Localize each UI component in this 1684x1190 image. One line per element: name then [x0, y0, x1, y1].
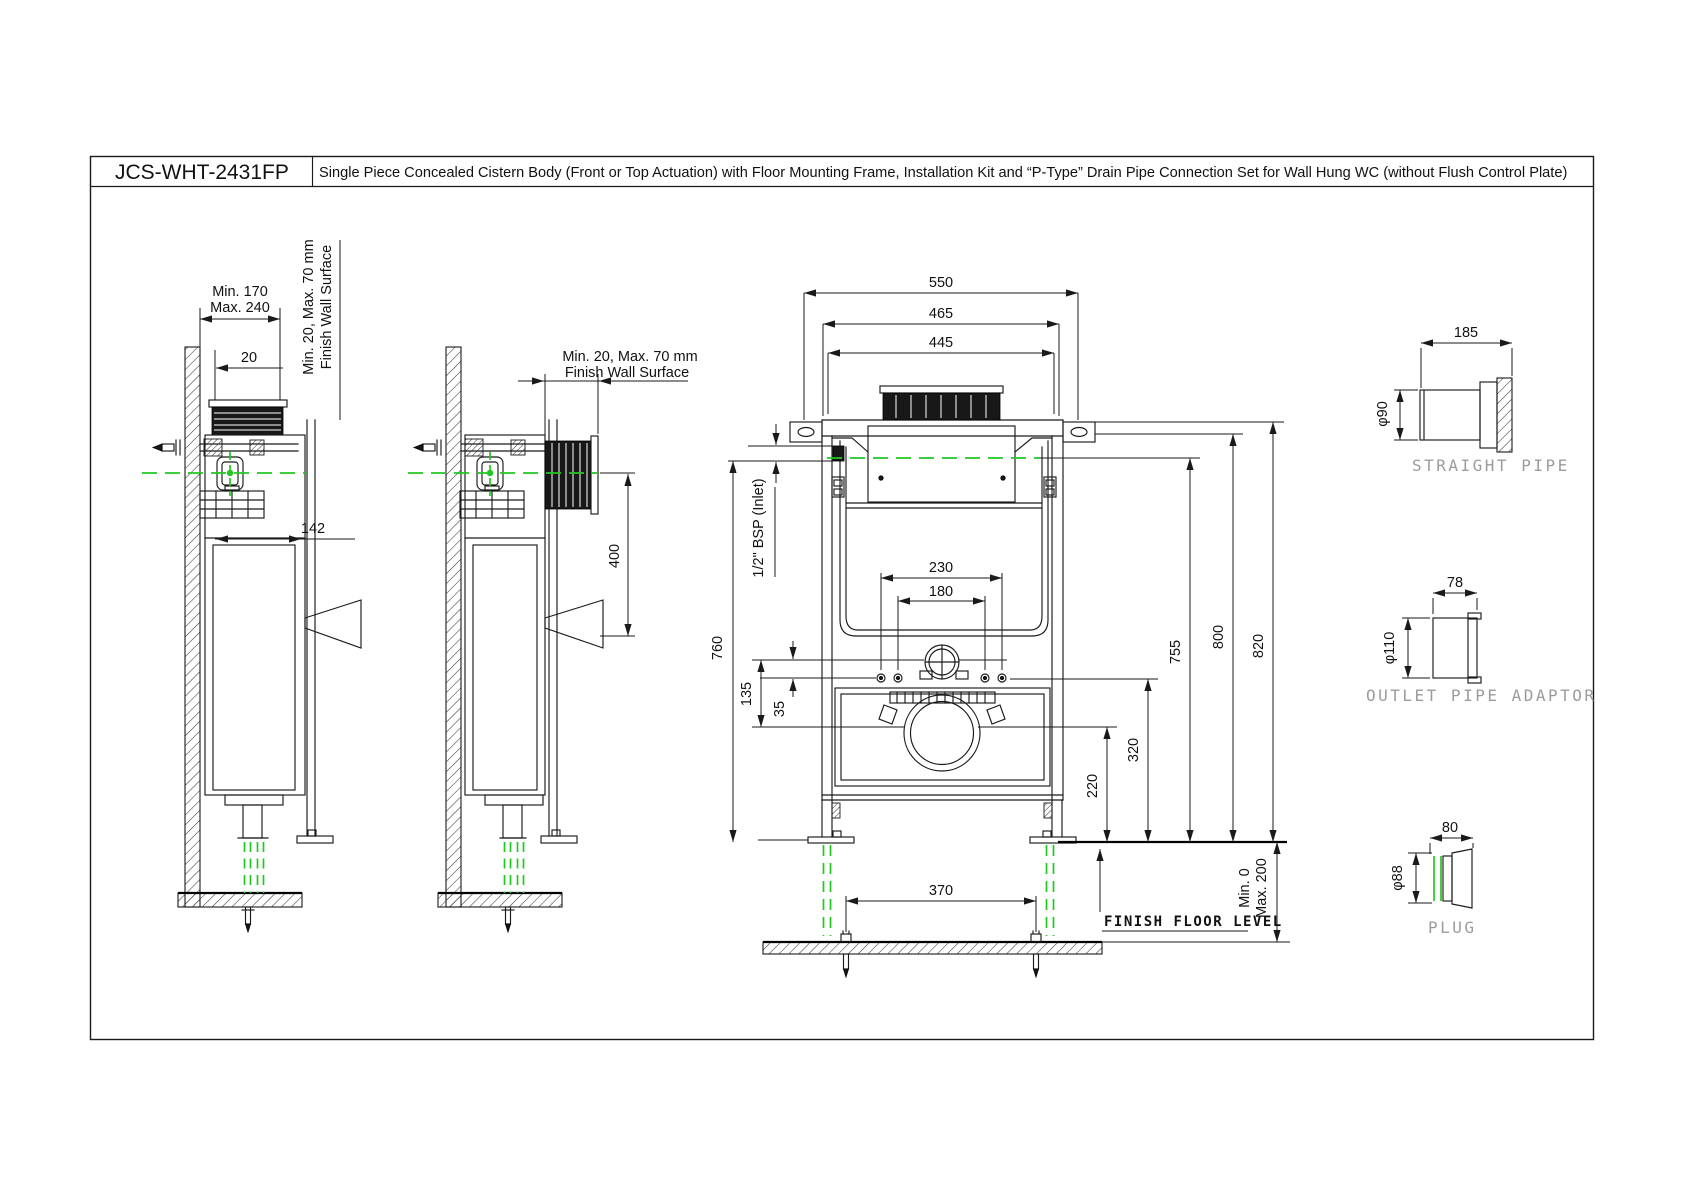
drawing-sheet: JCS-WHT-2431FP Single Piece Concealed Ci…	[0, 0, 1684, 1190]
dim-465: 465	[929, 306, 953, 322]
dim-floor-max: Max. 200	[1254, 858, 1270, 918]
label-finish-wall-top-1: Min. 20, Max. 70 mm	[301, 239, 317, 374]
floor-anchor	[242, 907, 254, 932]
dim-floor-min: Min. 0	[1237, 868, 1253, 908]
dim-550: 550	[929, 275, 953, 291]
front-view: 550 465 445	[710, 275, 1290, 977]
bracket-grid	[200, 486, 264, 518]
dim-35: 35	[772, 701, 788, 717]
label-finish-wall-front-2: Finish Wall Surface	[565, 365, 689, 381]
flush-tube	[880, 386, 1003, 420]
title-description: Single Piece Concealed Cistern Body (Fro…	[319, 165, 1567, 181]
dim-max240: Max. 240	[210, 300, 270, 316]
flush-bend	[545, 600, 603, 648]
side-fitting-left	[832, 477, 844, 497]
plug-cap	[1452, 849, 1472, 908]
accessory-plug: 80 φ88 PLUG	[1390, 820, 1477, 937]
label-straight-pipe: STRAIGHT PIPE	[1412, 456, 1570, 475]
mounting-bracket-left	[790, 422, 822, 442]
dim-180: 180	[929, 584, 953, 600]
title-model: JCS-WHT-2431FP	[115, 161, 289, 184]
dim-755: 755	[1168, 640, 1184, 664]
drain-centerlines	[505, 842, 524, 893]
wall-hatch	[446, 347, 461, 907]
dim-370: 370	[929, 883, 953, 899]
floor-anchor	[502, 907, 514, 932]
dim-820: 820	[1251, 634, 1267, 658]
accessory-straight-pipe: 185 φ90 STRAIGHT PIPE	[1375, 325, 1570, 475]
dim-800: 800	[1211, 625, 1227, 649]
accessory-outlet-pipe-adaptor: 78 φ110 OUTLET PIPE ADAPTOR	[1366, 575, 1597, 705]
flush-bend	[305, 600, 361, 648]
dim-min170: Min. 170	[212, 284, 268, 300]
drain-clamp	[879, 692, 1005, 771]
label-finish-wall-top-2: Finish Wall Surface	[319, 245, 335, 369]
side-view-front-actuation: Min. 20, Max. 70 mm Finish Wall Surface …	[408, 347, 698, 932]
dim-142: 142	[301, 521, 325, 537]
dim-phi90: φ90	[1375, 401, 1391, 427]
dim-80: 80	[1442, 820, 1458, 836]
pipe-body	[1420, 390, 1480, 440]
adaptor-body	[1433, 618, 1477, 678]
cistern-body-side	[465, 435, 545, 838]
dim-phi88: φ88	[1390, 865, 1406, 891]
cistern-body-side	[205, 435, 305, 838]
dim-230: 230	[929, 560, 953, 576]
dim-220: 220	[1085, 774, 1101, 798]
label-finish-wall-front-1: Min. 20, Max. 70 mm	[562, 349, 697, 365]
bracket-grid	[460, 486, 524, 518]
mounting-bracket-right	[1063, 422, 1095, 442]
mounting-rod	[414, 439, 549, 456]
dim-445: 445	[929, 335, 953, 351]
frame	[822, 420, 1063, 800]
label-plug: PLUG	[1428, 918, 1477, 937]
dim-400: 400	[607, 544, 623, 568]
dim-78: 78	[1447, 575, 1463, 591]
floor-hatch	[178, 893, 302, 907]
dim-760: 760	[710, 636, 726, 660]
dim-phi110: φ110	[1382, 632, 1398, 665]
drain-centerlines	[245, 842, 264, 893]
dim-20: 20	[241, 350, 257, 366]
label-finish-floor-level: FINISH FLOOR LEVEL	[1104, 914, 1283, 930]
label-outlet-pipe-adaptor: OUTLET PIPE ADAPTOR	[1366, 686, 1597, 705]
frame-channel-side	[297, 420, 333, 843]
plug-neck	[1443, 856, 1452, 901]
floor-hatch	[438, 893, 562, 907]
side-fitting-right	[1044, 477, 1056, 497]
flush-tube-horizontal	[545, 436, 598, 514]
legs-feet	[758, 800, 1076, 843]
floor-hatch	[763, 942, 1102, 954]
side-view-top-actuation: Min. 170 Max. 240 20 Min. 20, Max. 70 mm…	[142, 239, 361, 932]
inlet-port	[920, 645, 968, 679]
dim-185: 185	[1454, 325, 1478, 341]
technical-drawing: JCS-WHT-2431FP Single Piece Concealed Ci…	[0, 0, 1684, 1190]
dim-135: 135	[739, 682, 755, 706]
wall-hatch	[185, 347, 200, 907]
label-inlet: 1/2" BSP (Inlet)	[751, 478, 767, 577]
dim-320: 320	[1126, 738, 1142, 762]
flush-tube	[209, 400, 287, 435]
mounting-rod	[153, 439, 298, 456]
